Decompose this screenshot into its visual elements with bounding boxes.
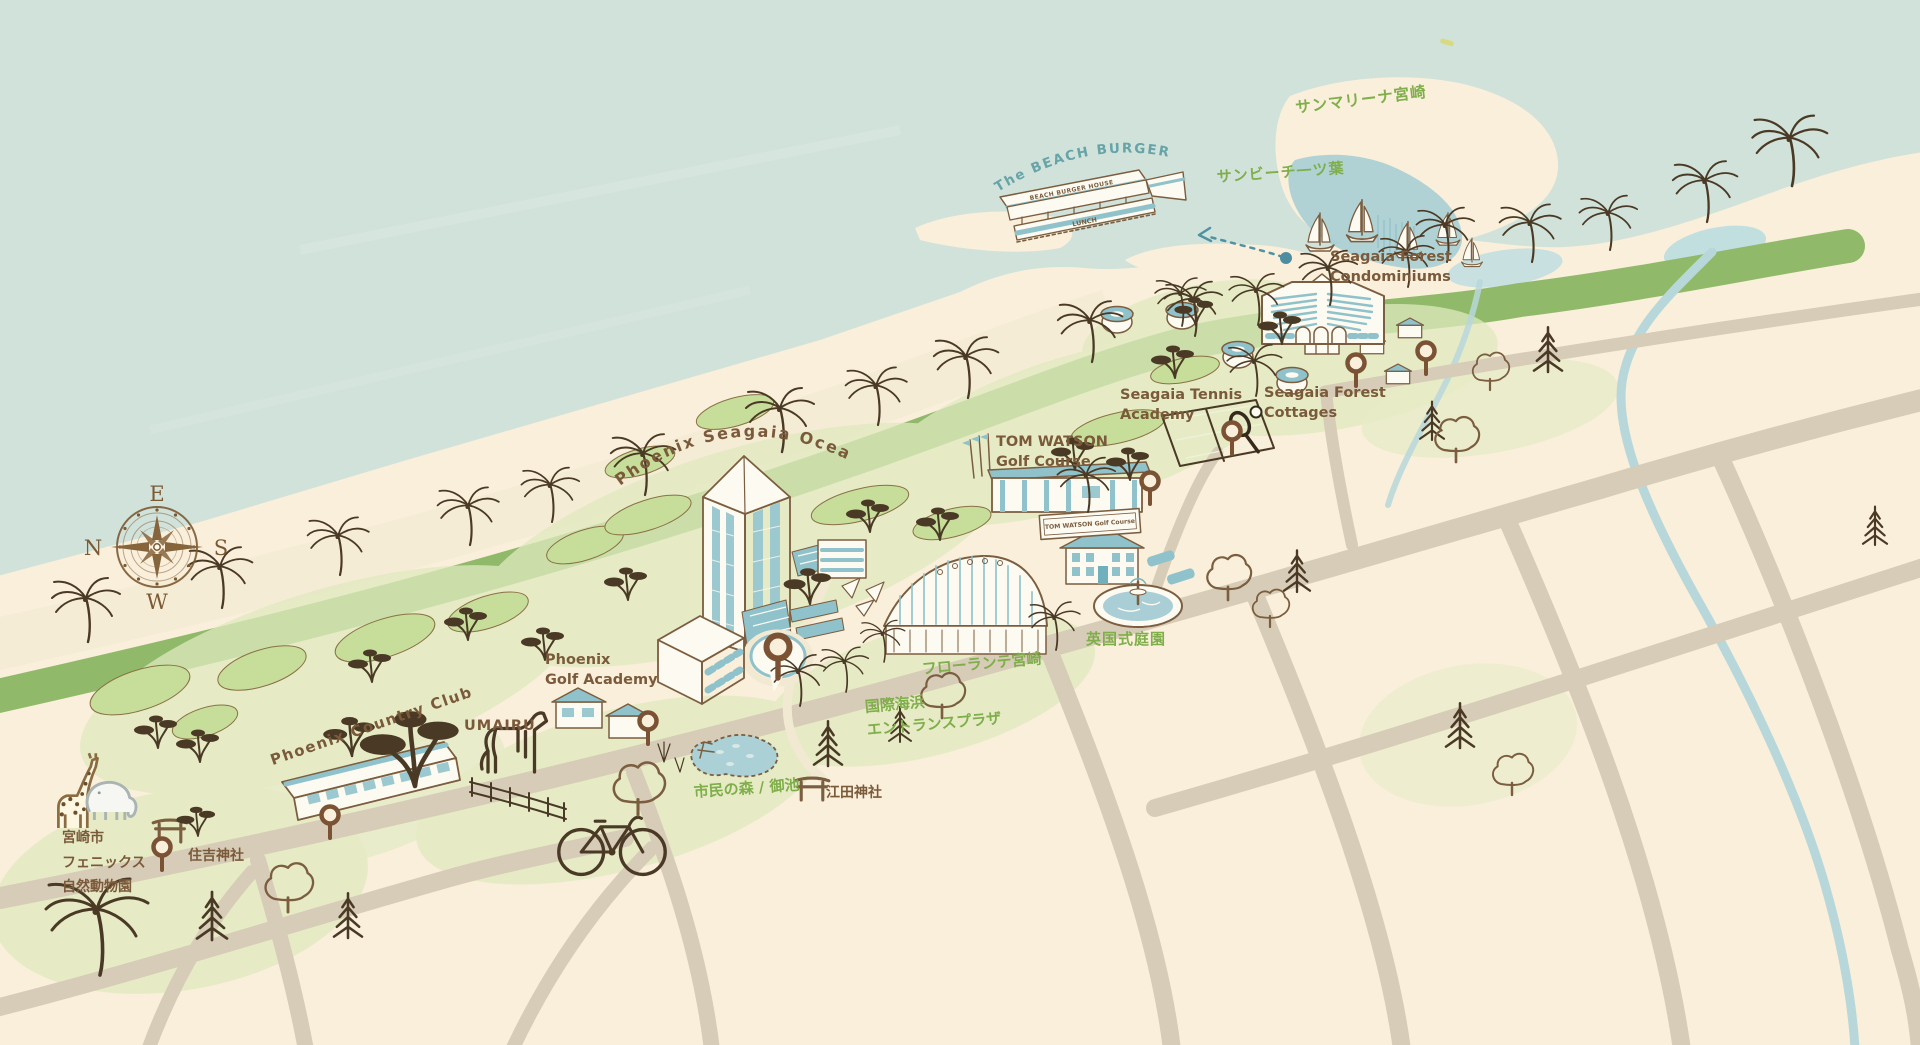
compass-west: W [146, 590, 168, 614]
seagaia-area-map: E N S W Phoenix Seagaia Ocean Tower The … [0, 0, 1920, 1045]
location-dot [1280, 252, 1292, 264]
compass-north: N [84, 536, 102, 560]
map-illustration: E N S W Phoenix Seagaia Ocean Tower The … [0, 0, 1920, 1045]
compass-south: S [214, 536, 228, 560]
compass-east: E [149, 482, 164, 506]
